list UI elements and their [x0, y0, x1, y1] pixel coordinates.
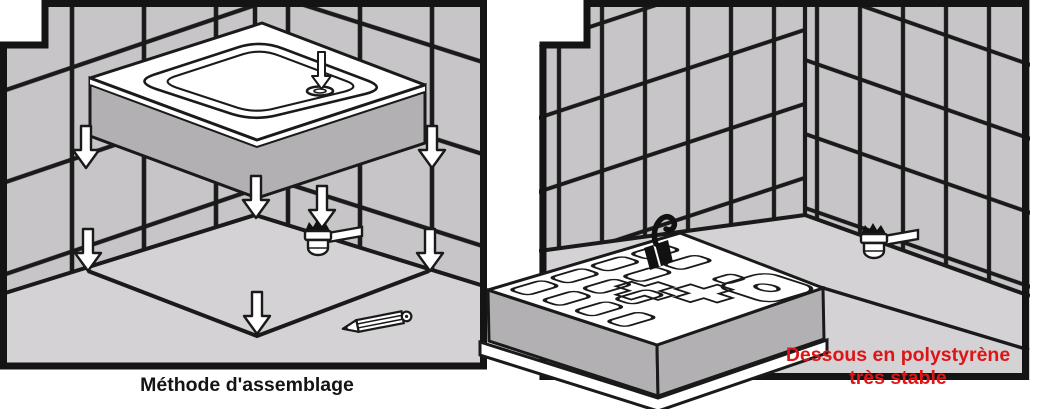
two-panel-illustration: Méthode d'assemblage [0, 0, 1040, 409]
right-panel-caption-line2: très stable [849, 367, 947, 389]
right-panel: Dessous en polystyrène très stable [480, 0, 1030, 409]
right-panel-caption-line1: Dessous en polystyrène [786, 344, 1010, 366]
left-wall-tiles [539, 0, 805, 251]
left-panel-caption: Méthode d'assemblage [140, 374, 354, 396]
illustration-canvas: Méthode d'assemblage [0, 0, 1040, 409]
left-panel: Méthode d'assemblage [0, 0, 487, 396]
